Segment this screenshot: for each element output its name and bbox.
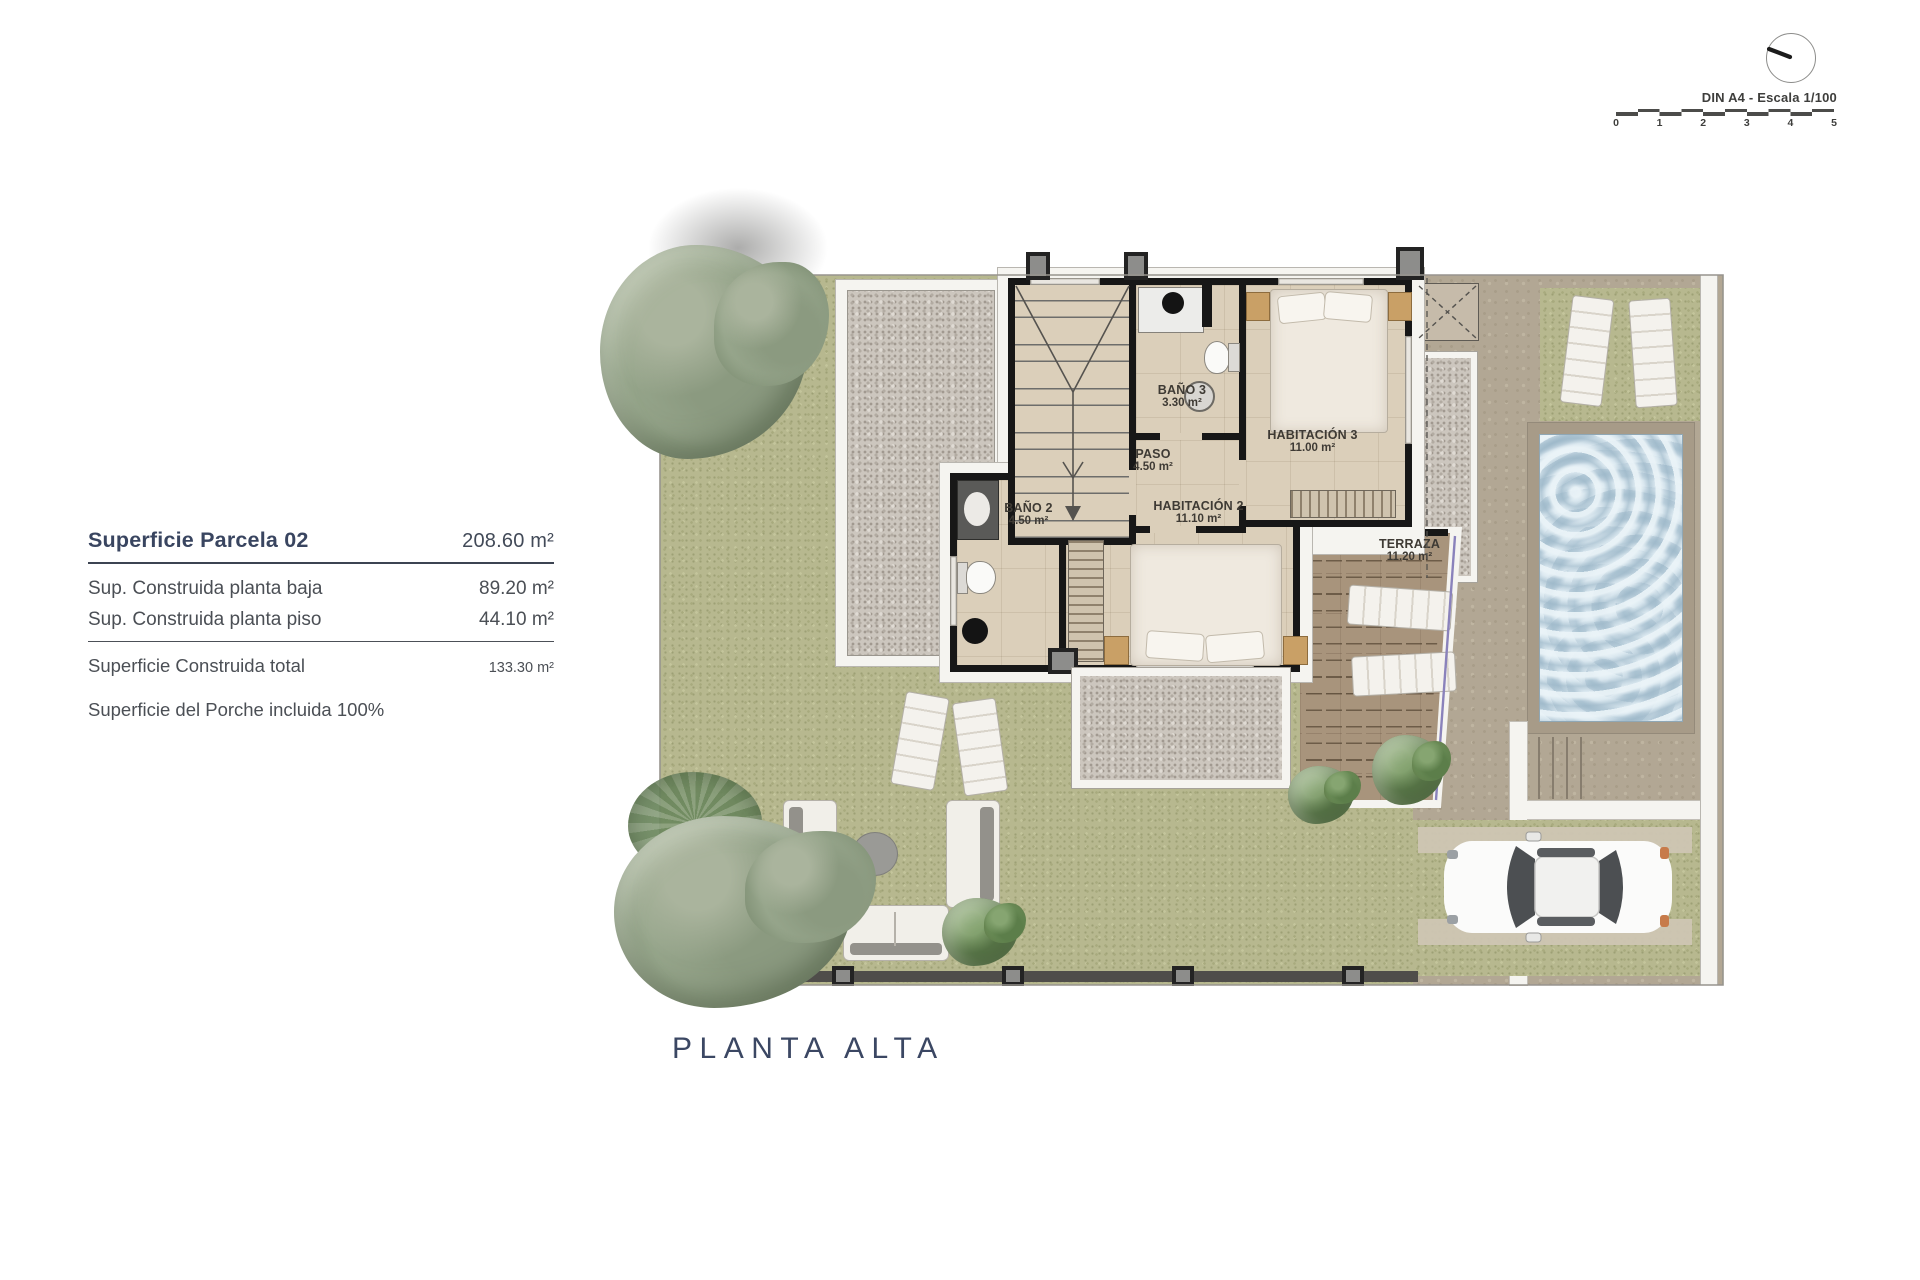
scale-bar-ticks: 0 1 2 3 4 5 <box>1616 117 1834 131</box>
surface-info-panel: Superficie Parcela 02 208.60 m² Sup. Con… <box>88 528 554 721</box>
toilet-tank <box>1228 343 1240 372</box>
parcel-surface-value: 208.60 m² <box>462 530 554 553</box>
nightstand <box>1246 292 1270 321</box>
room-label-bath3: BAÑO 3 3.30 m² <box>1132 383 1232 410</box>
pillow <box>1277 292 1328 325</box>
fence-post <box>1342 966 1364 986</box>
north-needle <box>1767 34 1814 81</box>
sink <box>962 618 988 644</box>
door-opening <box>1150 526 1196 533</box>
built-upper-floor-row: Sup. Construida planta piso 44.10 m² <box>88 609 554 631</box>
divider <box>88 562 554 564</box>
room-label-bedroom2: HABITACIÓN 2 11.10 m² <box>1126 499 1271 526</box>
built-total-value: 133.30 m² <box>489 660 554 676</box>
fence-post <box>832 966 854 986</box>
scale-tick: 3 <box>1737 117 1757 129</box>
gravel-terrace-lower <box>1072 668 1290 788</box>
plan-caption: PLANTA ALTA <box>672 1032 945 1066</box>
parcel-surface-label: Superficie Parcela 02 <box>88 528 309 553</box>
built-ground-floor-value: 89.20 m² <box>479 578 554 600</box>
swimming-pool <box>1539 434 1683 722</box>
scale-tick: 4 <box>1780 117 1800 129</box>
built-upper-floor-value: 44.10 m² <box>479 609 554 631</box>
pillow <box>1323 291 1373 323</box>
pillar <box>1396 247 1424 280</box>
boundary-wall-right <box>1700 275 1718 985</box>
toilet <box>1204 341 1230 374</box>
shower-head-icon <box>1162 292 1184 314</box>
sun-lounger <box>1628 298 1677 409</box>
built-total-label: Superficie Construida total <box>88 655 305 677</box>
window <box>950 556 957 626</box>
garden-armchair <box>946 800 1000 908</box>
wall-stub <box>1202 285 1212 327</box>
terrace-lounger <box>1351 651 1457 696</box>
pool-steps <box>1538 737 1592 799</box>
fence-post <box>1002 966 1024 986</box>
room-label-terrace: TERRAZA 11.20 m² <box>1362 537 1457 564</box>
scale-tick: 2 <box>1693 117 1713 129</box>
walkway-band <box>1527 800 1700 820</box>
scale-tick: 0 <box>1606 117 1626 129</box>
installation-box <box>1417 283 1479 341</box>
parcel-surface-row: Superficie Parcela 02 208.60 m² <box>88 528 554 553</box>
scale-tick: 5 <box>1824 117 1844 129</box>
terrace-lounger <box>1347 584 1454 631</box>
built-ground-floor-label: Sup. Construida planta baja <box>88 578 323 600</box>
window <box>1405 336 1412 444</box>
window <box>1278 278 1364 285</box>
nightstand <box>1104 636 1129 665</box>
built-ground-floor-row: Sup. Construida planta baja 89.20 m² <box>88 578 554 600</box>
fence <box>770 971 1418 982</box>
nightstand <box>1283 636 1308 665</box>
pillar <box>1026 252 1050 280</box>
wardrobe <box>1290 490 1396 518</box>
nightstand <box>1388 292 1412 321</box>
scale-bar <box>1616 109 1834 117</box>
plan-sheet: DIN A4 - Escala 1/100 0 1 2 3 4 5 Superf… <box>0 0 1920 1280</box>
room-label-bath2: BAÑO 2 4.50 m² <box>976 501 1081 528</box>
toilet <box>966 561 996 594</box>
built-total-row: Superficie Construida total 133.30 m² <box>88 655 554 677</box>
scale-tick: 1 <box>1650 117 1670 129</box>
pillow <box>1145 630 1205 662</box>
room-label-hall: PASO 4.50 m² <box>1103 447 1203 474</box>
pillar <box>1124 252 1148 280</box>
divider <box>88 641 554 642</box>
north-arrow-icon <box>1766 33 1816 83</box>
built-upper-floor-label: Sup. Construida planta piso <box>88 609 321 631</box>
pillow <box>1205 631 1265 664</box>
fence-post <box>1172 966 1194 986</box>
room-label-bedroom3: HABITACIÓN 3 11.00 m² <box>1240 428 1385 455</box>
scale-label: DIN A4 - Escala 1/100 <box>1598 90 1837 105</box>
scale-bar-segments-bottom <box>1616 112 1834 115</box>
porch-note: Superficie del Porche incluida 100% <box>88 699 554 721</box>
door-opening <box>1160 433 1202 440</box>
wardrobe <box>1068 540 1104 662</box>
car <box>1438 831 1678 943</box>
